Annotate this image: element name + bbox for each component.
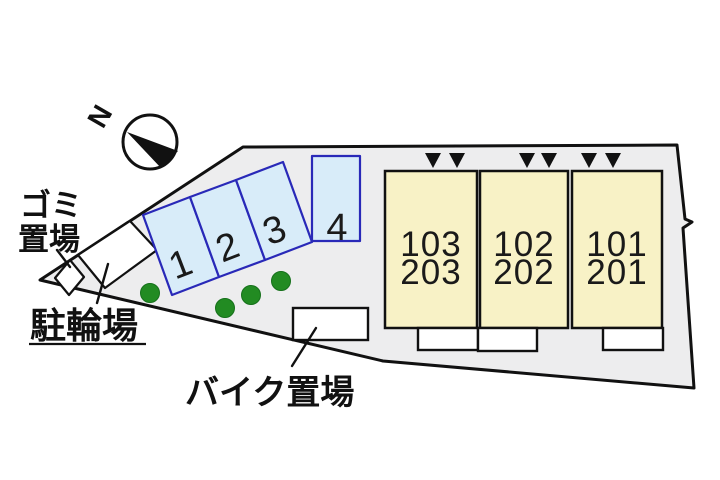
garbage-area-label-line2: 置場 [18, 222, 80, 257]
garbage-area-label-line1: ゴミ [20, 188, 82, 223]
unit-202-label: 202 [493, 253, 554, 292]
bush-icon [272, 272, 291, 291]
motorcycle-storage-box [293, 308, 368, 340]
entrance-stub-1 [418, 328, 478, 350]
bush-icon [216, 299, 235, 318]
bush-icon [242, 286, 261, 305]
entrance-stub-3 [603, 328, 663, 350]
unit-203-label: 203 [400, 253, 461, 292]
motorcycle-storage-label: バイク置場 [185, 374, 354, 412]
site-plan-svg: N 1 2 3 4 103 203 102 202 101 201 [0, 0, 720, 480]
north-compass: N [81, 100, 178, 169]
unit-201-label: 201 [586, 253, 647, 292]
parking-space-4-number: 4 [326, 207, 347, 249]
bicycle-parking-label: 駐輪場 [30, 305, 138, 346]
bush-icon [141, 284, 160, 303]
entrance-stub-2 [478, 328, 537, 351]
north-label: N [81, 100, 118, 133]
